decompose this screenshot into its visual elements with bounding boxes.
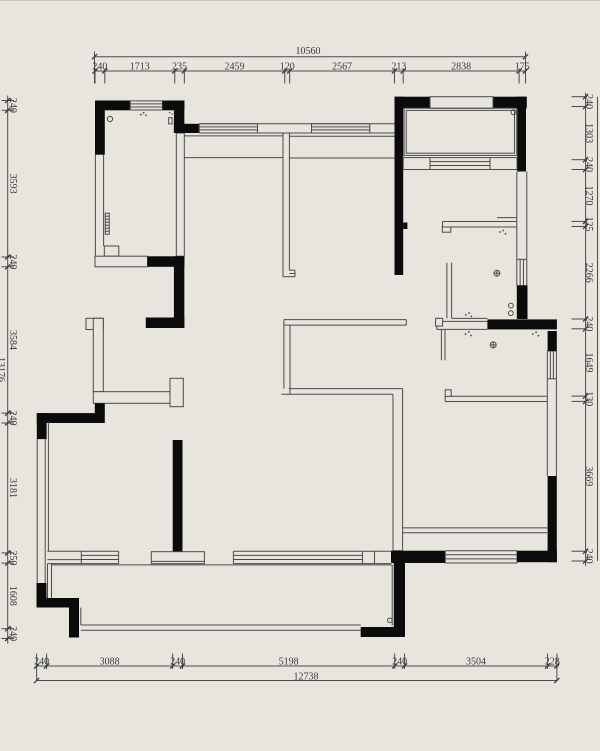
svg-text:10560: 10560 [296,46,321,57]
svg-text:1270: 1270 [583,185,594,205]
svg-text:130: 130 [583,391,594,406]
svg-text:240: 240 [7,411,18,426]
svg-text:250: 250 [7,551,18,566]
svg-text:13176: 13176 [0,357,6,382]
svg-text:240: 240 [583,549,594,564]
svg-text:2567: 2567 [332,61,352,72]
svg-text:3088: 3088 [100,657,120,668]
svg-text:240: 240 [7,98,18,113]
svg-text:240: 240 [7,254,18,269]
svg-text:120: 120 [280,61,295,72]
svg-text:228: 228 [545,657,560,668]
svg-text:125: 125 [583,216,594,231]
svg-text:1649: 1649 [583,352,594,372]
svg-text:3181: 3181 [7,478,18,498]
svg-text:240: 240 [7,626,18,641]
svg-text:2459: 2459 [225,61,245,72]
svg-text:2266: 2266 [583,263,594,283]
svg-text:235: 235 [172,61,187,72]
svg-text:240: 240 [583,157,594,172]
svg-text:3593: 3593 [7,174,18,194]
svg-text:3584: 3584 [7,330,18,350]
svg-text:12738: 12738 [294,672,319,683]
svg-text:240: 240 [583,316,594,331]
svg-text:1608: 1608 [7,586,18,606]
svg-text:240: 240 [392,657,407,668]
svg-text:240: 240 [92,61,107,72]
svg-text:213: 213 [391,61,406,72]
svg-text:5198: 5198 [279,657,299,668]
svg-text:2838: 2838 [451,61,471,72]
svg-text:3669: 3669 [583,466,594,486]
svg-text:1713: 1713 [130,61,150,72]
svg-text:175: 175 [515,61,530,72]
svg-text:3504: 3504 [466,657,486,668]
svg-text:240: 240 [170,657,185,668]
svg-text:240: 240 [583,94,594,109]
svg-text:240: 240 [34,657,49,668]
svg-text:1303: 1303 [583,123,594,143]
